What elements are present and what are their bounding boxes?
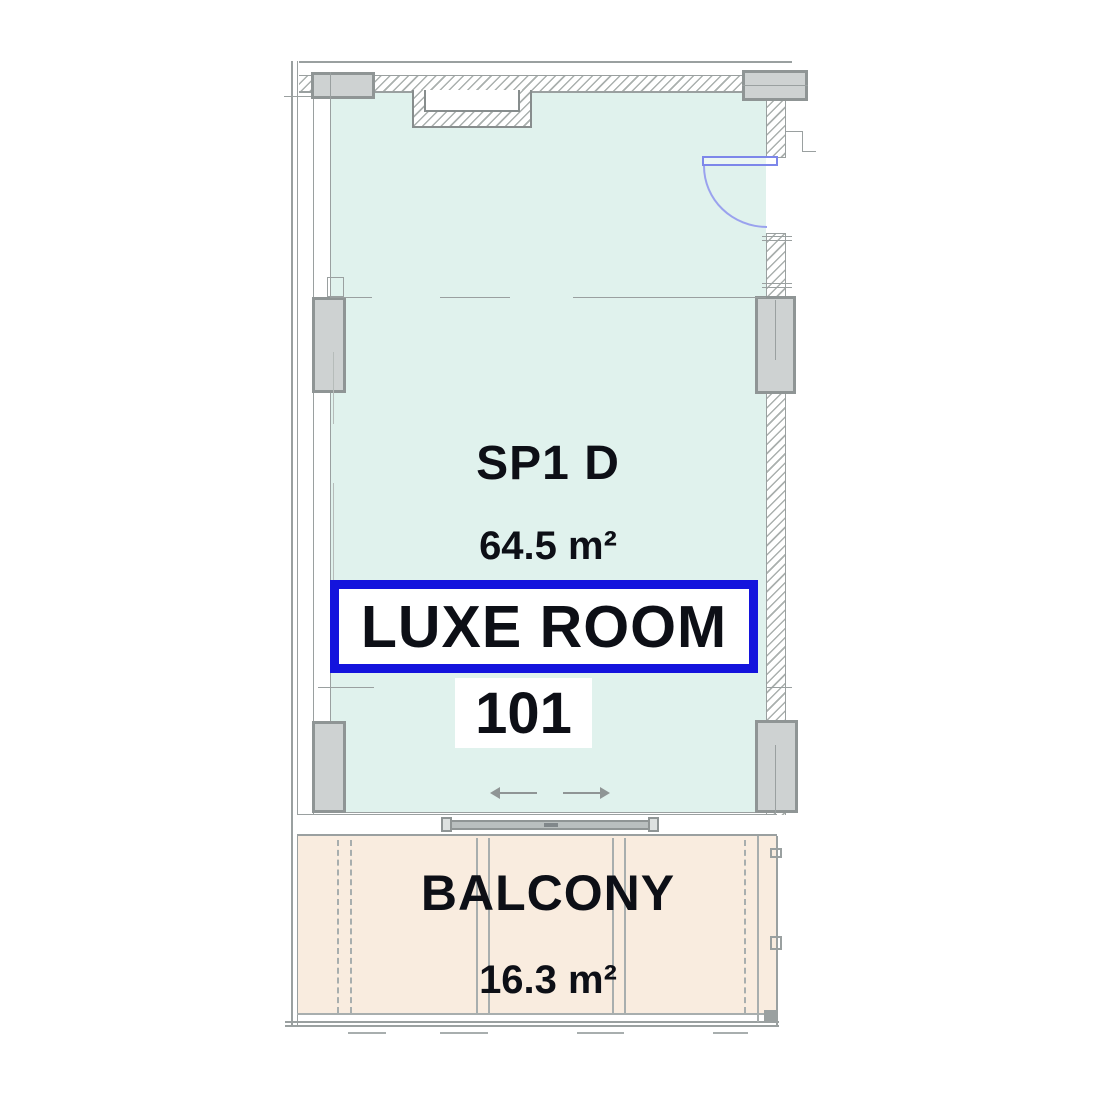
dimension-tick: [348, 1032, 386, 1034]
room-name-label: LUXE ROOM: [361, 593, 727, 661]
exterior-wall-step-h1: [786, 131, 803, 132]
balcony-area-label: 16.3 m²: [330, 958, 766, 1002]
dimension-tick: [713, 1032, 748, 1034]
left-wall-outer-line: [291, 61, 293, 1026]
floor-plan: SP1 D 64.5 m² LUXE ROOM 101 BALCONY 16.3…: [0, 0, 1100, 1100]
column-top-left-joint: [330, 72, 331, 99]
column-bottom-left: [312, 721, 346, 813]
door-leaf: [702, 156, 778, 166]
sliding-door-end-cap: [441, 817, 452, 832]
top-left-wall-stub: [284, 96, 312, 97]
right-wall-upper: [766, 99, 786, 158]
left-wall-line-3: [313, 76, 314, 815]
wall-joint-tick-2: [762, 287, 792, 288]
floor-seam-line: [333, 352, 334, 424]
dimension-tick: [577, 1032, 624, 1034]
left-wall-line-2: [297, 61, 298, 1026]
balcony-right-line: [776, 836, 778, 1027]
balcony-inner-bottom-line: [297, 1013, 777, 1015]
column-bottom-right: [755, 720, 798, 813]
sliding-direction-arrows: [488, 782, 612, 806]
door-jamb-tick-1: [762, 236, 792, 237]
exterior-wall-step-h2: [802, 151, 816, 152]
room-number-box: 101: [455, 678, 592, 748]
column-mid-left: [312, 297, 346, 393]
floor-seam-line: [766, 687, 792, 688]
room-type-label: SP1 D: [330, 438, 766, 490]
balcony-rail-detail: [770, 936, 782, 950]
sliding-door-center-mark: [544, 823, 558, 827]
arrow-right-icon: [600, 787, 610, 799]
sliding-door-end-cap: [648, 817, 659, 832]
column-top-left: [311, 72, 375, 99]
room-number-label: 101: [475, 680, 572, 747]
wall-joint-tick-1: [762, 283, 792, 284]
floor-seam-line: [440, 297, 510, 298]
floor-seam-line: [330, 297, 372, 298]
arrow-left-icon: [490, 787, 500, 799]
room-area-label: 64.5 m²: [330, 524, 766, 568]
balcony-outer-bottom-band: [285, 1021, 779, 1027]
dimension-tick: [440, 1032, 488, 1034]
column-mid-right-step: [775, 300, 776, 360]
floor-seam-line: [318, 687, 374, 688]
room-name-box[interactable]: LUXE ROOM: [330, 580, 758, 673]
balcony-name-label: BALCONY: [330, 866, 766, 920]
door-jamb-tick-2: [762, 240, 792, 241]
balcony-rail-detail: [770, 848, 782, 858]
column-top-right-joint: [742, 85, 808, 86]
floor-seam-line: [573, 297, 766, 298]
wall-niche-inner: [424, 90, 520, 112]
left-wall-joint-detail: [327, 277, 344, 297]
exterior-wall-step-v: [802, 131, 803, 152]
balcony-corner-block: [764, 1010, 777, 1023]
